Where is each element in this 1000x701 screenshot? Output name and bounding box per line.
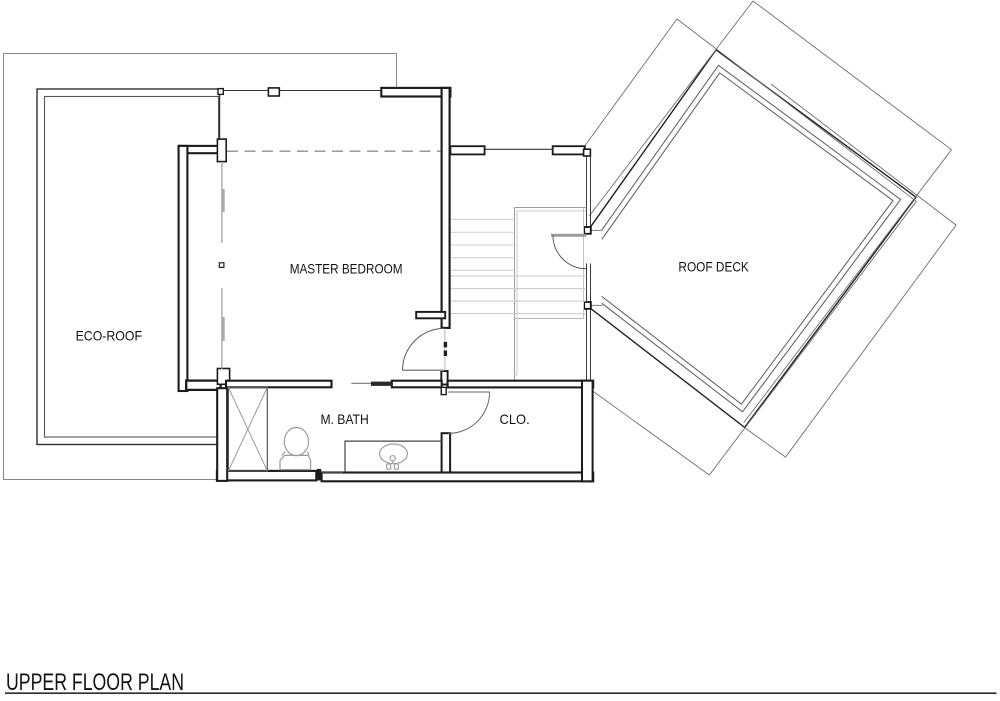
svg-text:ECO-ROOF: ECO-ROOF bbox=[76, 328, 142, 344]
svg-text:M. BATH: M. BATH bbox=[320, 411, 368, 427]
svg-text:ROOF DECK: ROOF DECK bbox=[678, 258, 749, 274]
svg-text:MASTER BEDROOM: MASTER BEDROOM bbox=[290, 260, 403, 276]
svg-text:CLO.: CLO. bbox=[500, 411, 530, 427]
svg-text:UPPER FLOOR PLAN: UPPER FLOOR PLAN bbox=[6, 669, 184, 696]
